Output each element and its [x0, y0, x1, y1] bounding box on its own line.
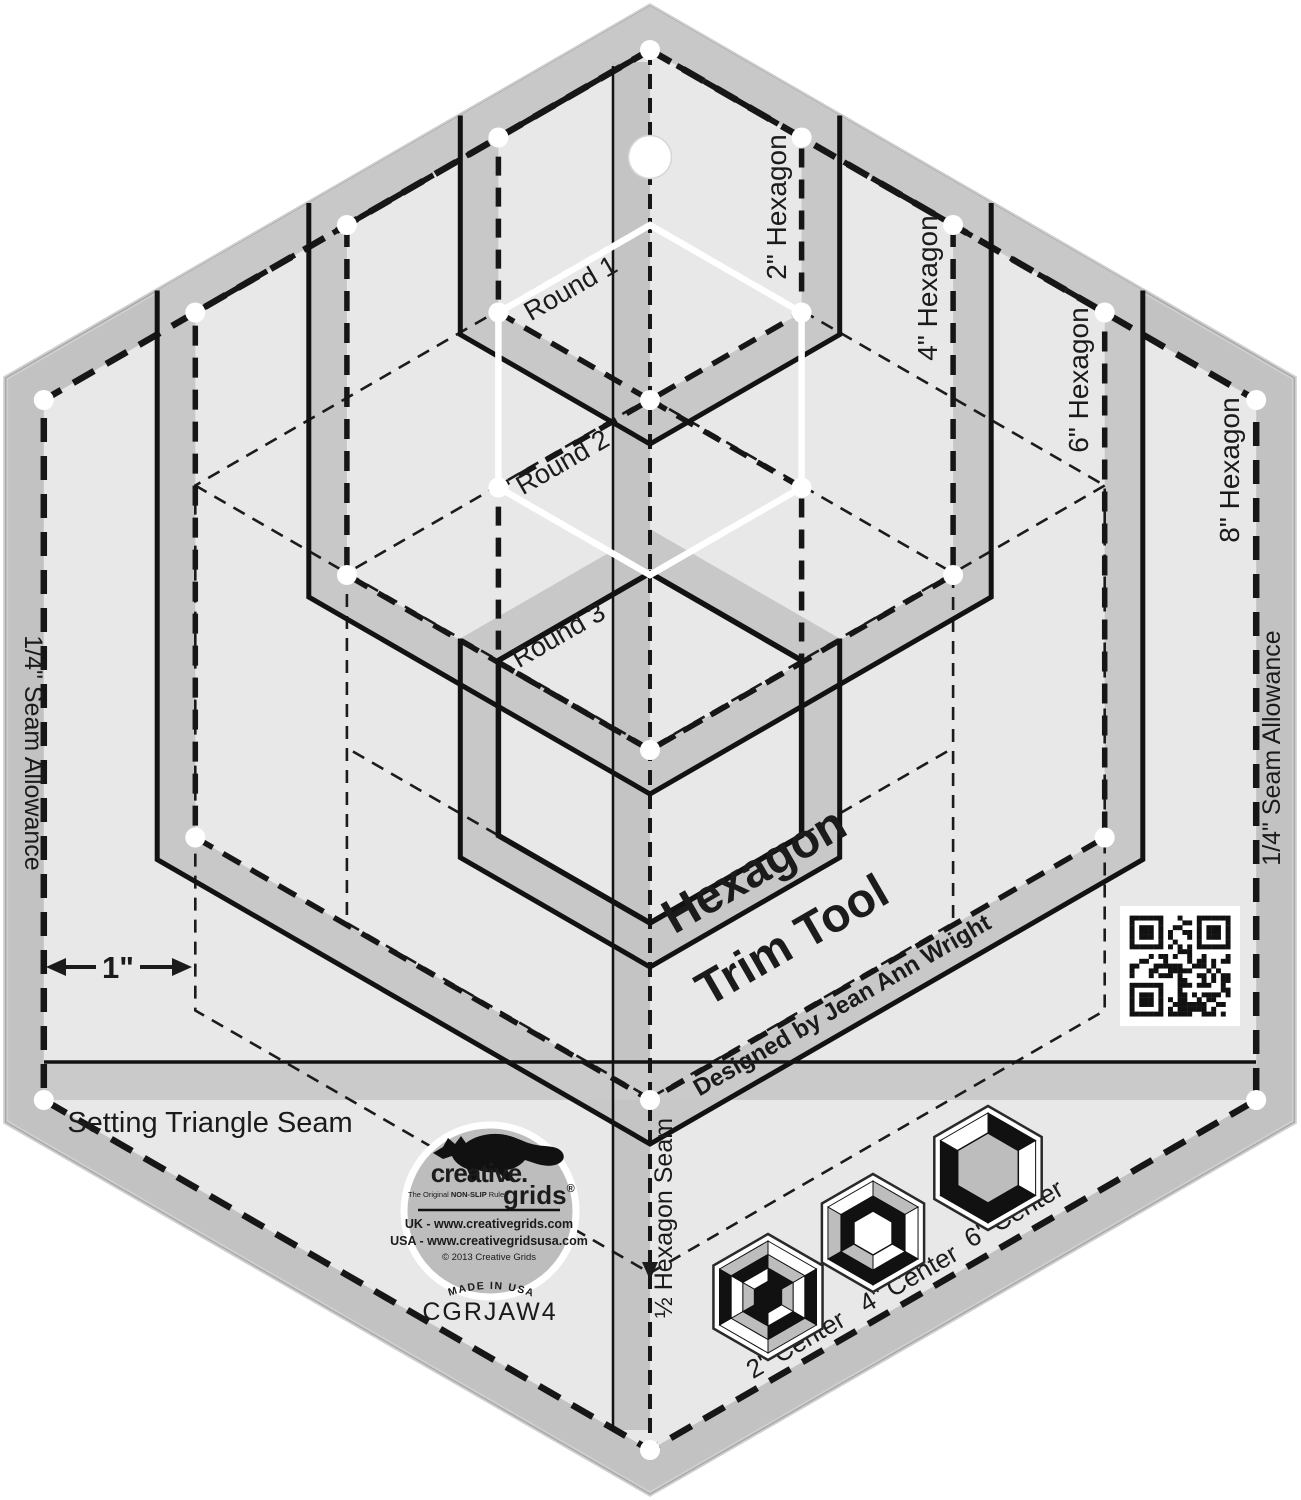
hexagon-6in-label: 6" Hexagon [1063, 307, 1094, 452]
qr-code-icon [1120, 906, 1240, 1026]
logo-grids-text: grids [503, 1180, 567, 1210]
product-image-hexagon-trim-tool: 1" Round 1 Round 2 Round 3 2" Hexagon 4"… [0, 0, 1301, 1500]
logo-url-uk: UK - www.creativegrids.com [405, 1217, 573, 1231]
hexagon-trim-tool-ruler: 1" Round 1 Round 2 Round 3 2" Hexagon 4"… [0, 0, 1301, 1500]
hexagon-8in-label: 8" Hexagon [1214, 397, 1245, 542]
half-hexagon-label: ½ Hexagon Seam [650, 1118, 678, 1318]
seam-allowance-left-label: 1/4" Seam Allowance [19, 635, 47, 870]
logo-url-usa: USA - www.creativegridsusa.com [390, 1234, 588, 1248]
logo-copyright: © 2013 Creative Grids [442, 1252, 536, 1263]
inch-label: 1" [102, 950, 134, 985]
logo-registered-mark: ® [567, 1183, 575, 1195]
logo-tagline: The OriginalNON-SLIPRuler [408, 1190, 507, 1199]
logo-tagline-bold: NON-SLIP [451, 1190, 487, 1199]
setting-triangle-label: Setting Triangle Seam [67, 1107, 352, 1139]
logo-tagline-pre: The Original [408, 1190, 449, 1199]
hanging-hole-icon [629, 136, 672, 179]
hexagon-4in-label: 4" Hexagon [912, 215, 943, 360]
logo-brand-bottom: grids® [503, 1180, 575, 1210]
logo-tagline-post: Ruler [489, 1190, 507, 1199]
sku-label: CGRJAW4 [422, 1298, 557, 1326]
seam-allowance-right-label: 1/4" Seam Allowance [1258, 630, 1286, 865]
hexagon-2in-label: 2" Hexagon [761, 134, 792, 279]
